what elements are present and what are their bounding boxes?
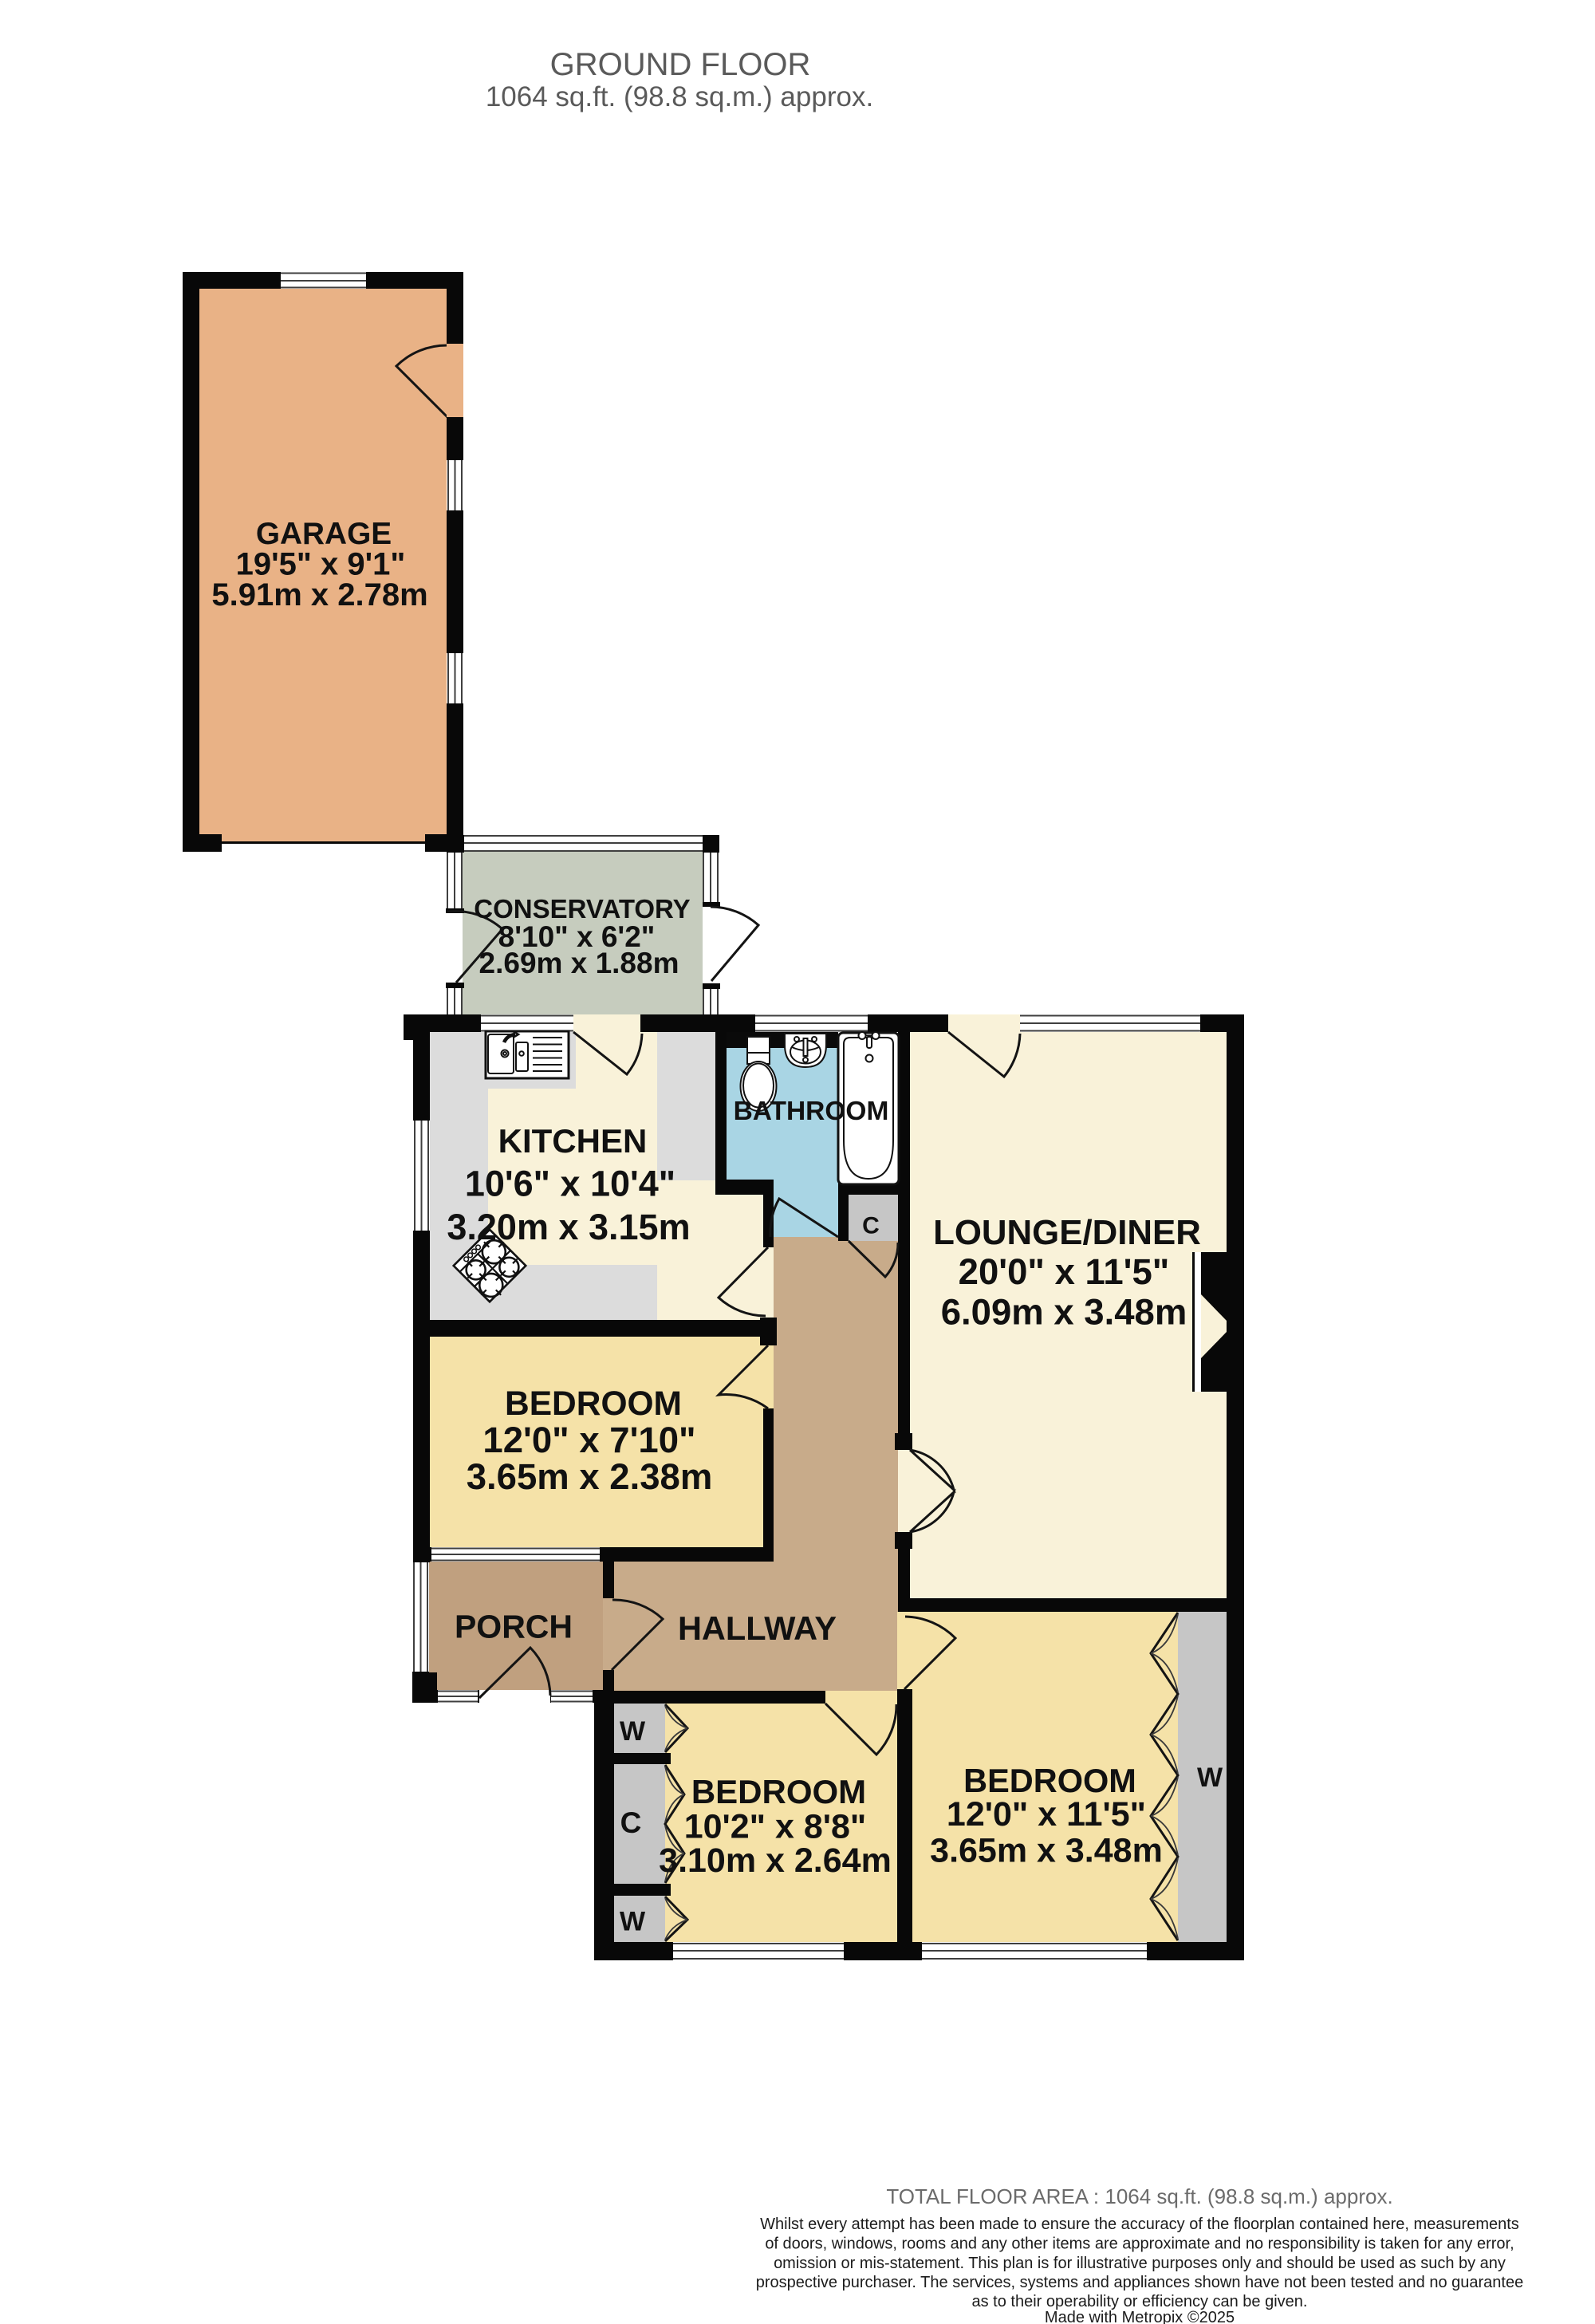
svg-text:2.69m x 1.88m: 2.69m x 1.88m [479, 947, 679, 979]
svg-text:HALLWAY: HALLWAY [678, 1609, 837, 1647]
svg-text:omission or mis-statement. Thi: omission or mis-statement. This plan is … [774, 2255, 1506, 2272]
svg-text:GROUND FLOOR: GROUND FLOOR [550, 47, 811, 82]
svg-text:Made with Metropix ©2025: Made with Metropix ©2025 [1045, 2309, 1235, 2324]
svg-text:Whilst every attempt has been: Whilst every attempt has been made to en… [760, 2216, 1519, 2233]
svg-text:W: W [620, 1907, 646, 1937]
svg-text:W: W [620, 1716, 646, 1747]
svg-text:W: W [1197, 1763, 1223, 1793]
svg-text:19'5" x 9'1": 19'5" x 9'1" [236, 547, 406, 582]
svg-text:10'2" x 8'8": 10'2" x 8'8" [684, 1808, 867, 1846]
svg-text:20'0" x 11'5": 20'0" x 11'5" [959, 1251, 1170, 1292]
svg-text:BEDROOM: BEDROOM [691, 1773, 866, 1810]
svg-text:TOTAL FLOOR AREA : 1064 sq.ft.: TOTAL FLOOR AREA : 1064 sq.ft. (98.8 sq.… [886, 2184, 1392, 2208]
svg-text:BATHROOM: BATHROOM [734, 1097, 889, 1126]
svg-text:C: C [862, 1213, 880, 1239]
svg-text:5.91m x 2.78m: 5.91m x 2.78m [211, 577, 427, 613]
svg-text:BEDROOM: BEDROOM [505, 1385, 682, 1423]
svg-text:12'0" x 7'10": 12'0" x 7'10" [482, 1420, 695, 1460]
svg-text:3.65m x 2.38m: 3.65m x 2.38m [467, 1456, 713, 1497]
svg-text:3.65m x 3.48m: 3.65m x 3.48m [930, 1832, 1163, 1870]
svg-text:prospective purchaser. The ser: prospective purchaser. The services, sys… [756, 2274, 1523, 2291]
svg-text:10'6" x 10'4": 10'6" x 10'4" [465, 1164, 675, 1204]
svg-text:of doors, windows, rooms and a: of doors, windows, rooms and any other i… [765, 2235, 1514, 2253]
svg-text:BEDROOM: BEDROOM [963, 1762, 1136, 1799]
svg-text:6.09m x 3.48m: 6.09m x 3.48m [941, 1292, 1187, 1333]
svg-text:as to their operability or eff: as to their operability or efficiency ca… [972, 2293, 1308, 2310]
svg-text:1064 sq.ft. (98.8 sq.m.) appro: 1064 sq.ft. (98.8 sq.m.) approx. [486, 81, 873, 112]
svg-text:KITCHEN: KITCHEN [498, 1122, 648, 1160]
svg-text:LOUNGE/DINER: LOUNGE/DINER [933, 1213, 1201, 1252]
svg-text:3.20m x 3.15m: 3.20m x 3.15m [447, 1207, 690, 1247]
svg-text:PORCH: PORCH [455, 1609, 573, 1645]
svg-text:3.10m x 2.64m: 3.10m x 2.64m [659, 1841, 892, 1880]
svg-text:CONSERVATORY: CONSERVATORY [474, 894, 690, 924]
svg-text:12'0" x 11'5": 12'0" x 11'5" [947, 1795, 1146, 1834]
svg-text:C: C [620, 1806, 642, 1839]
